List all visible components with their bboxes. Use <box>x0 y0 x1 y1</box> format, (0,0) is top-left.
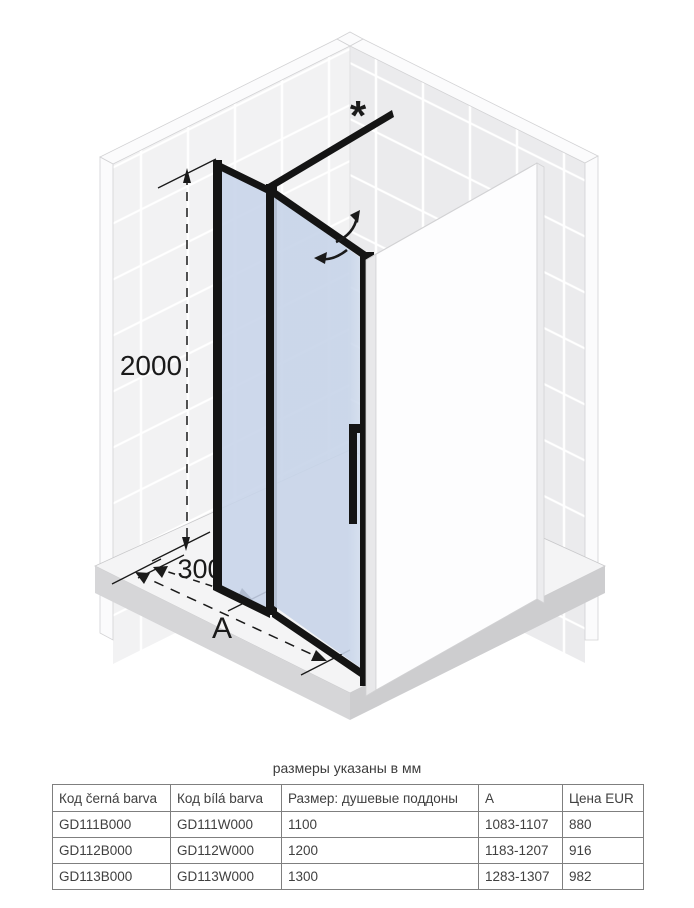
table-cell: 1200 <box>282 838 479 864</box>
fixed-panel-glass <box>222 168 266 612</box>
table-header-cell: Код bílá barva <box>171 785 282 812</box>
asterisk-label: * <box>350 92 367 139</box>
fixed-panel-left-post <box>213 160 222 590</box>
fixed-glass-panel <box>213 160 277 618</box>
units-note: размеры указаны в мм <box>0 760 694 776</box>
table-cell: 1300 <box>282 864 479 890</box>
shower-enclosure-diagram: 2000 300 A * <box>0 0 694 758</box>
door-glass <box>274 196 372 676</box>
table-header-cell: A <box>479 785 563 812</box>
table-cell: GD111W000 <box>171 812 282 838</box>
table-header-cell: Цена EUR <box>563 785 644 812</box>
table-cell: 916 <box>563 838 644 864</box>
table-header-cell: Код černá barva <box>53 785 171 812</box>
table-cell: 982 <box>563 864 644 890</box>
side-panel-right-edge <box>537 163 544 603</box>
door-handle-bar <box>349 427 357 524</box>
table-cell: GD113B000 <box>53 864 171 890</box>
table-cell: GD112B000 <box>53 838 171 864</box>
table-cell: 1100 <box>282 812 479 838</box>
table-cell: 1283-1307 <box>479 864 563 890</box>
side-panel-face <box>376 163 537 690</box>
page: 2000 300 A * <box>0 0 694 908</box>
table-cell: GD113W000 <box>171 864 282 890</box>
table-cell: 1083-1107 <box>479 812 563 838</box>
height-label: 2000 <box>120 350 182 381</box>
table-row: GD113B000GD113W00013001283-1307982 <box>53 864 644 890</box>
spec-table-wrap: Код černá barvaКод bílá barvaРазмер: душ… <box>52 784 644 890</box>
table-header-cell: Размер: душевые поддоны <box>282 785 479 812</box>
table-cell: GD112W000 <box>171 838 282 864</box>
table-cell: 1183-1207 <box>479 838 563 864</box>
table-cell: 880 <box>563 812 644 838</box>
table-row: GD112B000GD112W00012001183-1207916 <box>53 838 644 864</box>
table-row: GD111B000GD111W00011001083-1107880 <box>53 812 644 838</box>
table-cell: GD111B000 <box>53 812 171 838</box>
side-panel-left-edge <box>366 254 376 696</box>
spec-table-body: GD111B000GD111W00011001083-1107880GD112B… <box>53 812 644 890</box>
spec-table: Код černá barvaКод bílá barvaРазмер: душ… <box>52 784 644 890</box>
total-width-label: A <box>212 612 232 645</box>
table-header-row: Код černá barvaКод bílá barvaРазмер: душ… <box>53 785 644 812</box>
